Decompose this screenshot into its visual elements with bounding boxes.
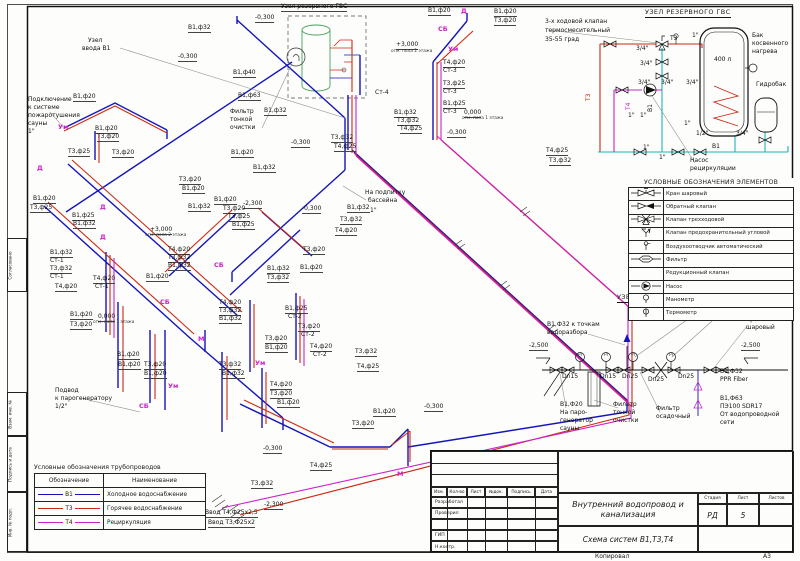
tb-sheet-value: 5 bbox=[727, 504, 759, 526]
pipe-label: Ст-4 bbox=[375, 90, 389, 96]
pipe-label: PI bbox=[604, 354, 608, 358]
legend-row: Обратный клапан bbox=[629, 201, 794, 214]
pipe-label: PI bbox=[669, 354, 673, 358]
pipe-label: -0,300 bbox=[291, 140, 310, 148]
tb-stage-label: Стадия bbox=[698, 493, 727, 504]
pipe-label: В1,ф32 bbox=[267, 266, 290, 274]
pipe-label: бассейна bbox=[368, 198, 397, 204]
tb-role-developed: Разработал bbox=[435, 500, 463, 505]
format-note: А3 bbox=[763, 553, 771, 560]
air-vent-icon bbox=[629, 241, 663, 251]
tb-col-doc: №док. bbox=[485, 487, 507, 497]
tb-role-ncontr: Н.контр. bbox=[435, 545, 456, 550]
pipe-label: Т3,ф20 bbox=[179, 177, 201, 185]
pipe-label: Т3,ф25 bbox=[30, 205, 52, 213]
pipe-label: сауны bbox=[560, 426, 579, 432]
pipe-label: В1,ф63 bbox=[238, 93, 261, 101]
pipe-label: PI bbox=[578, 354, 582, 358]
pipe-label: -0,300 bbox=[302, 206, 321, 214]
pipe-label: Ст-3 bbox=[443, 89, 457, 95]
legend-row: Фильтр bbox=[629, 254, 794, 267]
pipe-label: Ум bbox=[168, 383, 178, 390]
pipe-label: шаровый bbox=[746, 325, 775, 331]
pipe-label: 1" bbox=[659, 155, 666, 161]
pipe-label: Dn25 bbox=[648, 377, 664, 383]
tb-role-gip: ГИП bbox=[435, 533, 445, 538]
pipe-label: Т4,ф20 bbox=[55, 284, 77, 292]
pipe-label: Т4,ф25 bbox=[357, 364, 379, 372]
pipe-label: отм. пола 2 этажа bbox=[145, 234, 186, 238]
pipe-label: 3/4" bbox=[686, 80, 698, 86]
pipe-label: В1,Ф63 bbox=[720, 396, 743, 402]
pipe-label: Т3,ф20 bbox=[303, 247, 325, 255]
pipe-label: тонкой bbox=[230, 117, 252, 123]
pipe-label: -0,300 bbox=[178, 54, 197, 62]
pipe-label: Т3,ф20 bbox=[70, 322, 92, 330]
pipe-label: В1 bbox=[648, 104, 654, 112]
pipe-label: Т3,ф32 bbox=[251, 481, 273, 489]
pipe-label: М bbox=[198, 336, 204, 343]
pipe-label: 3/4" bbox=[638, 80, 650, 86]
pipe-label: 3/4" bbox=[661, 80, 673, 86]
pipe-label: 3/4" bbox=[736, 131, 748, 137]
pipe-label: 3-х ходовой клапан bbox=[545, 19, 607, 25]
pipe-label: водоразбора bbox=[547, 330, 588, 336]
pipe-label: к системе bbox=[28, 105, 59, 111]
pipe-label: PI bbox=[631, 354, 635, 358]
pipe-label: Ст-2 bbox=[301, 332, 315, 338]
legend-row: Клапан предохранительный угловой bbox=[629, 227, 794, 240]
pipe-label: СБ bbox=[160, 299, 170, 306]
pipe-label: В1,Ф32 bbox=[720, 369, 743, 375]
pipe-label: Dn25 bbox=[678, 374, 694, 380]
tb-col-sign: Подпись bbox=[507, 487, 535, 497]
pipe-label: Т4,ф20 bbox=[335, 228, 357, 236]
legend-row: Термометр bbox=[629, 307, 794, 320]
t3-line-sample: Т3 bbox=[38, 506, 100, 512]
pipe-label: В1,Ф20 bbox=[560, 402, 583, 408]
pipe-label: 3/4" bbox=[640, 61, 652, 67]
pipe-label: СБ bbox=[438, 26, 448, 33]
pipe-label: Т3,ф20 bbox=[352, 421, 374, 429]
pipe-label: Т4,ф25 bbox=[400, 126, 422, 134]
pipe-label: От водопроводной bbox=[720, 412, 779, 418]
filter-icon bbox=[629, 254, 663, 264]
pipe-label: Т3,ф32 bbox=[331, 135, 353, 143]
pipe-label: Ст-3 bbox=[443, 109, 457, 115]
reducing-valve-icon bbox=[629, 268, 663, 278]
pipe-label: Т3,ф20 bbox=[270, 391, 292, 399]
pipe-label: косвенного bbox=[752, 41, 788, 47]
pipe-label: термосмесительный bbox=[545, 28, 610, 34]
pipe-label: генератор bbox=[560, 418, 593, 424]
pipe-label: отм. пола 1 этажа bbox=[93, 321, 134, 325]
pipe-label: В1,ф32 bbox=[188, 25, 211, 33]
tb-col-izm: Изм. bbox=[431, 487, 447, 497]
pipe-label: осадочный bbox=[656, 414, 691, 420]
pipes-legend-table: Обозначение Наименование В1 Холодное вод… bbox=[34, 473, 206, 530]
pipe-label: Dn15 bbox=[562, 374, 578, 380]
elements-legend-table: Кран шаровый Обратный клапан Клапан трех… bbox=[628, 187, 794, 321]
pipe-label: отм. пола 1 этажа bbox=[462, 117, 503, 121]
pipe-label: ПЭ100 SDR17 bbox=[720, 404, 762, 410]
pipe-label: -0,300 bbox=[263, 446, 282, 454]
pipe-label: Т4,ф25 bbox=[546, 148, 568, 156]
stamp-vzam: Взам. инв. № bbox=[8, 397, 13, 433]
stamp-soglasovano: Согласовано bbox=[8, 249, 13, 283]
title-block: Изм. Кол-во Лист №док. Подпись Дата Разр… bbox=[430, 450, 793, 552]
pipe-label: Т3,ф20 bbox=[144, 362, 166, 370]
pipe-label: Ум bbox=[58, 124, 68, 131]
pipe-label: Ст-2 bbox=[288, 314, 302, 320]
pipe-label: Т4,ф25 bbox=[334, 144, 356, 152]
pipe-label: 1" bbox=[692, 33, 699, 39]
pipe-label: На паро- bbox=[560, 410, 587, 416]
pipe-label: В1,ф32 bbox=[264, 108, 287, 116]
pipe-label: 1/2" bbox=[696, 131, 708, 137]
pipe-label: Dn15 bbox=[600, 374, 616, 380]
pipe-label: М bbox=[397, 471, 403, 478]
pipe-label: Д bbox=[100, 234, 106, 241]
pipe-label: В1,ф32 bbox=[219, 316, 242, 324]
tb-sheet-label: Лист bbox=[727, 493, 759, 504]
pipe-label: нагрева bbox=[752, 49, 777, 55]
pipe-label: -0,300 bbox=[255, 15, 274, 23]
legend-row: Воздухоотводчик автоматический bbox=[629, 241, 794, 254]
pipe-label: Т4,ф20 bbox=[270, 382, 292, 390]
pipe-label: Узел резервного ГВС bbox=[281, 4, 347, 12]
pipe-label: 400 л bbox=[714, 57, 731, 63]
pipe-label: 1" bbox=[640, 113, 647, 119]
pipe-label: Ввод Т3,Ф25х2 bbox=[208, 520, 255, 528]
pump-icon bbox=[629, 281, 663, 291]
pipe-label: 1" bbox=[643, 145, 650, 151]
pipes-legend-col1: Обозначение bbox=[35, 474, 104, 488]
three-way-valve-icon bbox=[629, 215, 663, 225]
pipe-label: В1,ф25 bbox=[232, 222, 255, 230]
pipe-label: В1,ф20 bbox=[117, 352, 140, 360]
legend-row: Манометр bbox=[629, 294, 794, 307]
pipe-label: -0,300 bbox=[424, 404, 443, 412]
pipe-label: В1,ф20 bbox=[73, 94, 96, 102]
pipe-label: 3/4" bbox=[636, 46, 648, 52]
pipes-legend-row: Т4 Рециркуляция bbox=[35, 516, 206, 530]
pipe-label: В1,ф20 bbox=[182, 186, 205, 194]
pipes-legend-col2: Наименование bbox=[104, 474, 206, 488]
tb-stage-value: РД bbox=[698, 504, 727, 526]
copy-note: Копировал bbox=[595, 553, 629, 560]
pipe-label: В1,ф32 bbox=[222, 371, 245, 379]
pipe-label: -2,500 bbox=[529, 343, 548, 351]
tb-scheme-title: Схема систем В1,Т3,Т4 bbox=[558, 526, 698, 553]
pipe-label: В1,ф20 bbox=[70, 312, 93, 320]
pipe-label: В1,ф20 bbox=[428, 8, 451, 16]
pipe-label: пожаротушения bbox=[28, 113, 80, 119]
pipe-label: Т3,ф20 bbox=[97, 134, 119, 142]
legend-row: Клапан трехходовой bbox=[629, 214, 794, 227]
pipe-label: Т3,ф32 bbox=[340, 217, 362, 225]
pipes-legend-title: Условные обозначения трубопроводов bbox=[34, 464, 214, 471]
check-valve-icon bbox=[629, 201, 663, 211]
pipe-label: -0,300 bbox=[447, 130, 466, 138]
pipe-label: ввода В1 bbox=[82, 46, 110, 52]
pipe-label: Т3,ф20 bbox=[494, 18, 516, 26]
pipe-label: Т3,ф32 bbox=[549, 158, 571, 166]
pipe-label: Т3,ф32 bbox=[219, 362, 241, 370]
pipe-label: В1,ф32 bbox=[253, 165, 276, 173]
pipe-label: 1" bbox=[370, 208, 377, 214]
pipe-label: Узел bbox=[88, 38, 102, 44]
pipe-label: 1" bbox=[684, 121, 691, 127]
pipes-legend: Условные обозначения трубопроводов Обозн… bbox=[34, 464, 214, 530]
reserve-unit-title: УЗЕЛ РЕЗЕРВНОГО ГВС bbox=[645, 8, 731, 18]
pipe-label: Ст-1 bbox=[50, 274, 64, 280]
pipe-label: Dn25 bbox=[622, 374, 638, 380]
pipe-label: В1,ф20 bbox=[118, 362, 141, 370]
drawing-sheet: Узел резервного ГВС-0,300-0,300В1,ф32Узе… bbox=[0, 0, 800, 561]
pipe-label: В1,ф20 bbox=[231, 150, 254, 158]
pipe-label: Фильтр bbox=[613, 402, 637, 408]
pipe-label: Т3,ф32 bbox=[355, 349, 377, 357]
pipe-label: Т3 bbox=[670, 36, 677, 42]
pipe-label: Бак bbox=[752, 33, 763, 39]
pipe-label: Фильтр bbox=[230, 109, 254, 115]
pipe-label: В1,ф20 bbox=[146, 274, 169, 282]
stamp-inv: Инв. № подл. bbox=[8, 504, 13, 542]
pipe-label: очистки bbox=[230, 125, 255, 131]
tb-doc-title: Внутренний водопровод иканализация bbox=[558, 493, 698, 526]
pipe-label: Ум bbox=[255, 360, 265, 367]
thermometer-icon bbox=[629, 308, 663, 318]
pipe-label: сети bbox=[720, 420, 734, 426]
pipe-label: тонкой bbox=[613, 410, 635, 416]
pipe-label: В1,ф32 bbox=[188, 204, 211, 212]
legend-row: Кран шаровый bbox=[629, 188, 794, 201]
pipe-label: Ст-1 bbox=[95, 284, 109, 290]
pipe-label: -2,500 bbox=[741, 343, 760, 351]
pipe-label: На подпитку bbox=[365, 190, 405, 196]
pipe-label: В1,ф20 bbox=[277, 400, 300, 408]
pipe-label: В1,ф32 bbox=[347, 205, 370, 213]
pipe-label: В1,ф32 bbox=[73, 221, 96, 229]
v1-line-sample: В1 bbox=[38, 492, 100, 498]
pipe-label: Ст-3 bbox=[443, 68, 457, 74]
pipe-label: В1,ф20 bbox=[265, 345, 288, 353]
pipe-label: В1,ф20 bbox=[214, 197, 237, 205]
pipe-label: Т3,ф20 bbox=[112, 150, 134, 158]
tb-col-date: Дата bbox=[535, 487, 558, 497]
ball-valve-icon bbox=[629, 188, 663, 198]
manometer-icon bbox=[629, 294, 663, 304]
pipe-label: сауны bbox=[28, 121, 47, 127]
elements-legend: УСЛОВНЫЕ ОБОЗНАЧЕНИЯ ЭЛЕМЕНТОВ Кран шаро… bbox=[628, 178, 794, 321]
pipe-label: Д bbox=[37, 165, 43, 172]
pipe-label: Т3,ф25 bbox=[68, 149, 90, 157]
pipe-label: В1,ф20 bbox=[494, 9, 517, 17]
pipe-label: Т4 bbox=[626, 103, 632, 110]
elements-legend-title: УСЛОВНЫЕ ОБОЗНАЧЕНИЯ ЭЛЕМЕНТОВ bbox=[628, 178, 794, 187]
pipe-label: 35-55 град bbox=[545, 37, 579, 43]
stamp-podpis: Подпись и дата bbox=[8, 445, 13, 485]
tb-col-kol: Кол-во bbox=[447, 487, 467, 497]
pipe-label: отм. пола 2 этажа bbox=[391, 50, 432, 54]
pipe-label: Ст-2 bbox=[313, 352, 327, 358]
pipe-label: В1,ф20 bbox=[300, 265, 323, 273]
pipe-label: 1" bbox=[28, 129, 35, 135]
pipe-label: В1,ф20 bbox=[33, 196, 56, 204]
pipe-label: Насос bbox=[690, 158, 708, 164]
pipe-label: Д bbox=[461, 8, 467, 15]
pipe-label: Гидробак bbox=[756, 82, 786, 88]
tb-sheets-label: Листов bbox=[759, 493, 794, 504]
pipe-label: -2,300 bbox=[264, 502, 283, 510]
pipe-label: PPR Fiber bbox=[720, 377, 748, 383]
pipe-label: В1,ф20 bbox=[144, 371, 167, 379]
pipe-label: СБ bbox=[139, 403, 149, 410]
pipe-label: В1 bbox=[712, 144, 720, 150]
pipe-label: 1" bbox=[628, 113, 635, 119]
pipe-label: В1,ф40 bbox=[233, 70, 256, 78]
pipe-label: Т3 bbox=[586, 94, 592, 101]
pipes-legend-row: В1 Холодное водоснабжение bbox=[35, 488, 206, 502]
pipe-label: Подвод bbox=[55, 388, 79, 394]
pipe-label: В1,Ф32 к точкам bbox=[547, 322, 600, 328]
legend-row: Насос bbox=[629, 281, 794, 294]
pipe-label: СБ bbox=[214, 262, 224, 269]
pipe-label: к парогенератору bbox=[55, 396, 112, 402]
pipe-label: В1,ф20 bbox=[373, 409, 396, 417]
pipe-label: рециркуляции bbox=[690, 166, 736, 172]
pipe-label: -2,300 bbox=[243, 201, 262, 209]
tb-col-list: Лист bbox=[467, 487, 485, 497]
pipe-label: Т4,ф25 bbox=[310, 463, 332, 471]
pipe-label: Подключение bbox=[28, 97, 72, 103]
pipe-label: Фильтр bbox=[656, 406, 680, 412]
t4-line-sample: Т4 bbox=[38, 520, 100, 526]
pipe-label: В1,ф32 bbox=[168, 263, 191, 271]
pipes-legend-row: Т3 Горячее водоснабжение bbox=[35, 502, 206, 516]
pipe-label: Д bbox=[100, 204, 106, 211]
pipe-label: Т3,ф20 bbox=[265, 336, 287, 344]
pipe-label: Ст-1 bbox=[50, 258, 64, 264]
pipe-label: Ум bbox=[448, 46, 458, 53]
safety-angle-valve-icon bbox=[629, 228, 663, 238]
pipe-label: 1/2" bbox=[55, 404, 67, 410]
legend-row: Редукционный клапан bbox=[629, 267, 794, 280]
pipe-label: очистки bbox=[613, 418, 638, 424]
pipe-label: Т3,ф32 bbox=[267, 275, 289, 283]
